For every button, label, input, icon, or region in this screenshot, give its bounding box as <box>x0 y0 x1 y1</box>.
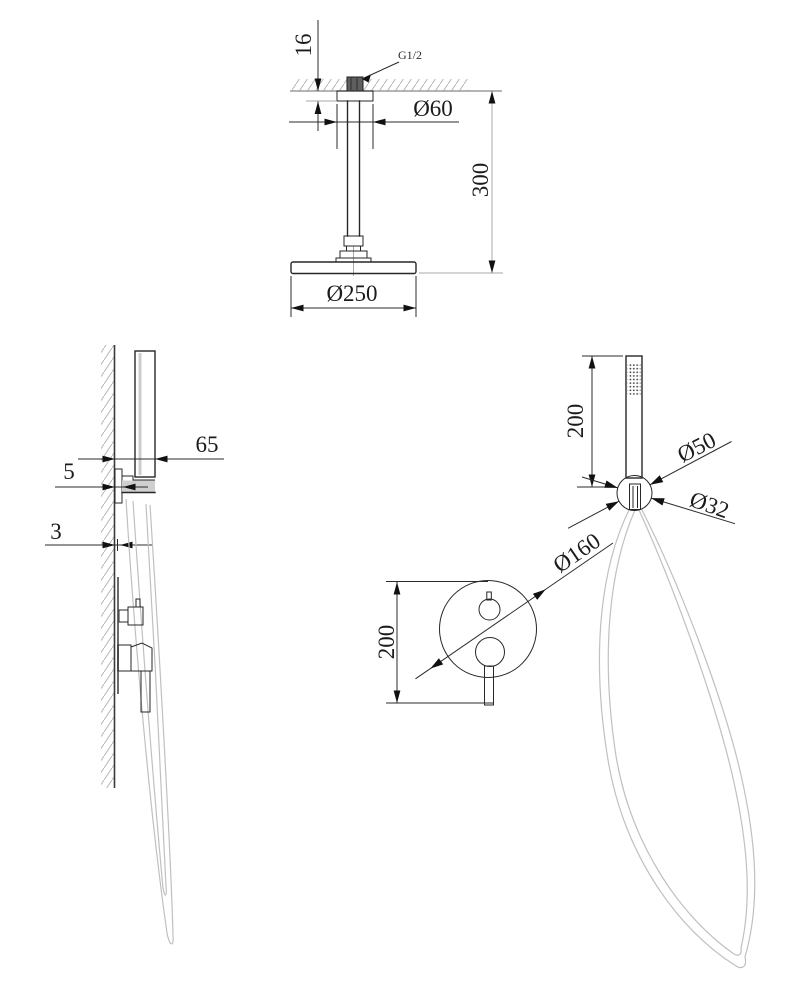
dim-3-label: 3 <box>50 519 62 544</box>
dim-300-label: 300 <box>468 163 493 198</box>
page-background <box>0 0 798 1000</box>
dim-d250-label: Ø250 <box>326 281 377 306</box>
wall-hatch <box>101 345 114 788</box>
technical-drawing-page: G1/2 16 Ø60 <box>0 0 798 1000</box>
dim-16-label: 16 <box>291 34 316 57</box>
shower-technical-drawing: G1/2 16 Ø60 <box>0 0 798 1000</box>
dim-65-label: 65 <box>196 432 219 457</box>
dim-200-mixer-label: 200 <box>374 625 399 660</box>
thread-nipple <box>347 77 363 91</box>
spray-face <box>628 364 641 395</box>
dim-5-label: 5 <box>63 459 75 484</box>
dim-d60-label: Ø60 <box>413 96 453 121</box>
thread-size-label: G1/2 <box>398 48 422 62</box>
dim-200-hand-label: 200 <box>563 404 588 439</box>
